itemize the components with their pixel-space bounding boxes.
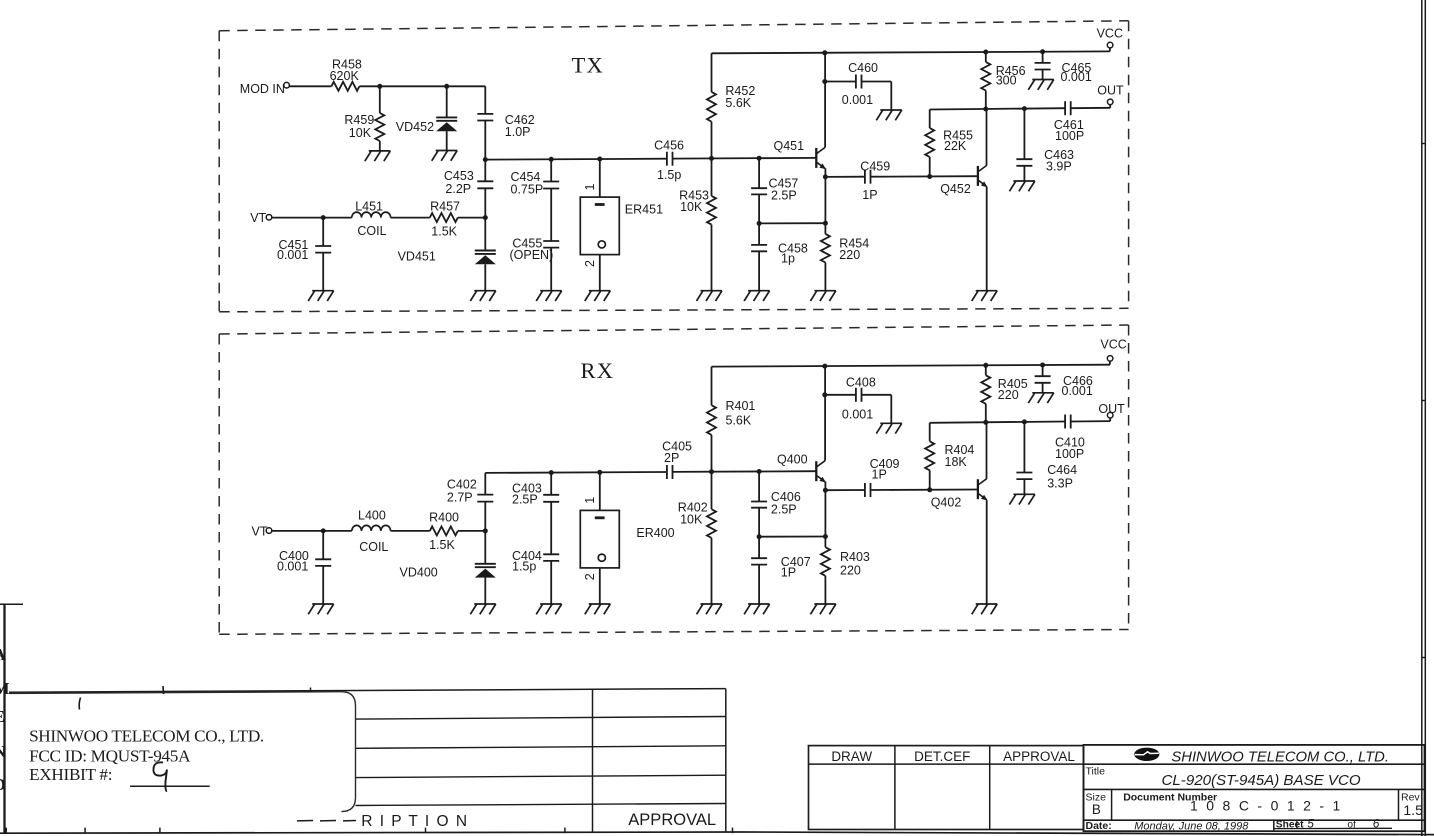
svg-text:OUT: OUT — [1097, 84, 1124, 98]
svg-text:SHINWOO TELECOM CO., LTD.: SHINWOO TELECOM CO., LTD. — [1171, 750, 1389, 766]
svg-text:3.9P: 3.9P — [1046, 160, 1072, 174]
svg-text:MOD IN: MOD IN — [240, 82, 285, 96]
svg-text:2: 2 — [583, 573, 597, 580]
svg-text:M: M — [0, 679, 10, 698]
svg-text:COIL: COIL — [357, 224, 386, 238]
svg-text:18K: 18K — [945, 455, 968, 469]
svg-text:100P: 100P — [1055, 129, 1084, 143]
svg-text:CL-920(ST-945A) BASE VCO: CL-920(ST-945A) BASE VCO — [1162, 772, 1361, 789]
svg-text:(OPEN): (OPEN) — [510, 248, 554, 262]
svg-text:0.001: 0.001 — [277, 248, 308, 262]
svg-text:Date:: Date: — [1086, 820, 1112, 832]
svg-text:1.0P: 1.0P — [505, 125, 531, 139]
svg-text:1.5p: 1.5p — [657, 168, 681, 182]
svg-text:1.5p: 1.5p — [512, 560, 536, 574]
svg-text:0.75P: 0.75P — [511, 183, 544, 197]
svg-text:R403: R403 — [840, 550, 870, 564]
svg-text:1.5K: 1.5K — [429, 538, 455, 552]
svg-text:220: 220 — [839, 248, 860, 262]
svg-text:E: E — [0, 707, 5, 726]
svg-text:10K: 10K — [349, 126, 372, 140]
svg-text:OUT: OUT — [1098, 402, 1125, 416]
svg-text:2.5P: 2.5P — [771, 188, 797, 202]
svg-text:1 0 8 C - 0 1 2 - 1: 1 0 8 C - 0 1 2 - 1 — [1190, 798, 1343, 814]
svg-text:2.7P: 2.7P — [447, 491, 473, 505]
svg-text:1p: 1p — [781, 252, 795, 266]
svg-text:of: of — [1347, 820, 1356, 831]
svg-text:A: A — [0, 645, 7, 664]
svg-text:COIL: COIL — [359, 540, 388, 554]
svg-text:620K: 620K — [330, 69, 360, 83]
svg-text:10K: 10K — [680, 512, 703, 526]
svg-text:R457: R457 — [430, 200, 460, 214]
svg-text:10K: 10K — [680, 200, 703, 214]
svg-text:5: 5 — [1307, 816, 1314, 830]
svg-text:L400: L400 — [358, 508, 386, 522]
svg-text:D: D — [0, 775, 6, 794]
svg-text:DET.CEF: DET.CEF — [914, 749, 970, 764]
svg-text:300: 300 — [996, 73, 1017, 87]
svg-text:DRAW: DRAW — [831, 749, 872, 764]
svg-text:SHINWOO TELECOM CO., LTD.: SHINWOO TELECOM CO., LTD. — [29, 727, 264, 746]
svg-text:2.5P: 2.5P — [512, 493, 538, 507]
svg-text:R400: R400 — [429, 510, 459, 524]
svg-text:0.001: 0.001 — [1062, 384, 1093, 398]
svg-text:VD400: VD400 — [400, 566, 438, 580]
svg-text:VD451: VD451 — [398, 250, 436, 264]
svg-text:5.6K: 5.6K — [726, 414, 752, 428]
svg-text:ER400: ER400 — [636, 526, 674, 540]
svg-text:VD452: VD452 — [396, 120, 434, 134]
svg-text:EXHIBIT #:: EXHIBIT #: — [29, 765, 112, 784]
svg-text:APPROVAL: APPROVAL — [1003, 749, 1075, 764]
svg-text:5.6K: 5.6K — [725, 96, 751, 110]
svg-text:2: 2 — [583, 260, 597, 267]
svg-text:0.001: 0.001 — [842, 408, 873, 422]
svg-text:Title: Title — [1086, 765, 1106, 777]
svg-text:0.001: 0.001 — [277, 560, 308, 574]
svg-text:APPROVAL: APPROVAL — [628, 811, 716, 829]
svg-text:C464: C464 — [1047, 463, 1077, 477]
svg-text:L451: L451 — [355, 200, 383, 214]
svg-text:R I P T I O N: R I P T I O N — [361, 813, 468, 830]
svg-text:Q451: Q451 — [774, 139, 805, 153]
svg-text:VT: VT — [250, 211, 266, 225]
svg-text:VT: VT — [252, 525, 268, 539]
svg-text:N: N — [0, 742, 7, 761]
svg-text:B: B — [1092, 802, 1101, 817]
svg-text:TX: TX — [572, 53, 604, 78]
svg-text:R401: R401 — [726, 399, 756, 413]
svg-text:22K: 22K — [944, 139, 967, 153]
svg-text:3.3P: 3.3P — [1047, 477, 1073, 491]
svg-text:R459: R459 — [344, 113, 374, 127]
svg-text:2.2P: 2.2P — [445, 182, 471, 196]
svg-text:2P: 2P — [664, 451, 679, 465]
svg-text:Q452: Q452 — [940, 182, 971, 196]
svg-text:1P: 1P — [862, 188, 877, 202]
svg-text:220: 220 — [998, 388, 1019, 402]
svg-text:1P: 1P — [781, 566, 796, 580]
svg-text:100P: 100P — [1055, 447, 1084, 461]
svg-text:2.5P: 2.5P — [771, 502, 797, 516]
svg-text:1P: 1P — [872, 468, 887, 482]
svg-text:FCC ID: MQUST-945A: FCC ID: MQUST-945A — [29, 747, 191, 766]
svg-text:1.5: 1.5 — [1403, 802, 1423, 818]
svg-text:C460: C460 — [848, 61, 878, 75]
svg-text:VCC: VCC — [1097, 26, 1123, 40]
svg-text:Q402: Q402 — [931, 495, 962, 509]
svg-text:6: 6 — [1373, 816, 1380, 830]
svg-text:C408: C408 — [846, 376, 876, 390]
svg-text:0.001: 0.001 — [842, 93, 873, 107]
svg-text:C459: C459 — [860, 160, 890, 174]
svg-text:Monday, June 08, 1998: Monday, June 08, 1998 — [1134, 820, 1249, 832]
svg-text:1: 1 — [583, 497, 597, 504]
svg-text:Sheet: Sheet — [1276, 820, 1304, 831]
svg-text:0.001: 0.001 — [1061, 70, 1092, 84]
svg-text:ER451: ER451 — [625, 203, 663, 217]
svg-text:1.5K: 1.5K — [431, 224, 457, 238]
svg-text:RX: RX — [581, 358, 615, 383]
svg-text:VCC: VCC — [1100, 337, 1126, 351]
svg-text:Q400: Q400 — [777, 452, 808, 466]
svg-text:1: 1 — [583, 183, 597, 190]
svg-text:C402: C402 — [447, 477, 477, 491]
svg-text:220: 220 — [840, 564, 861, 578]
svg-text:C456: C456 — [654, 139, 684, 153]
